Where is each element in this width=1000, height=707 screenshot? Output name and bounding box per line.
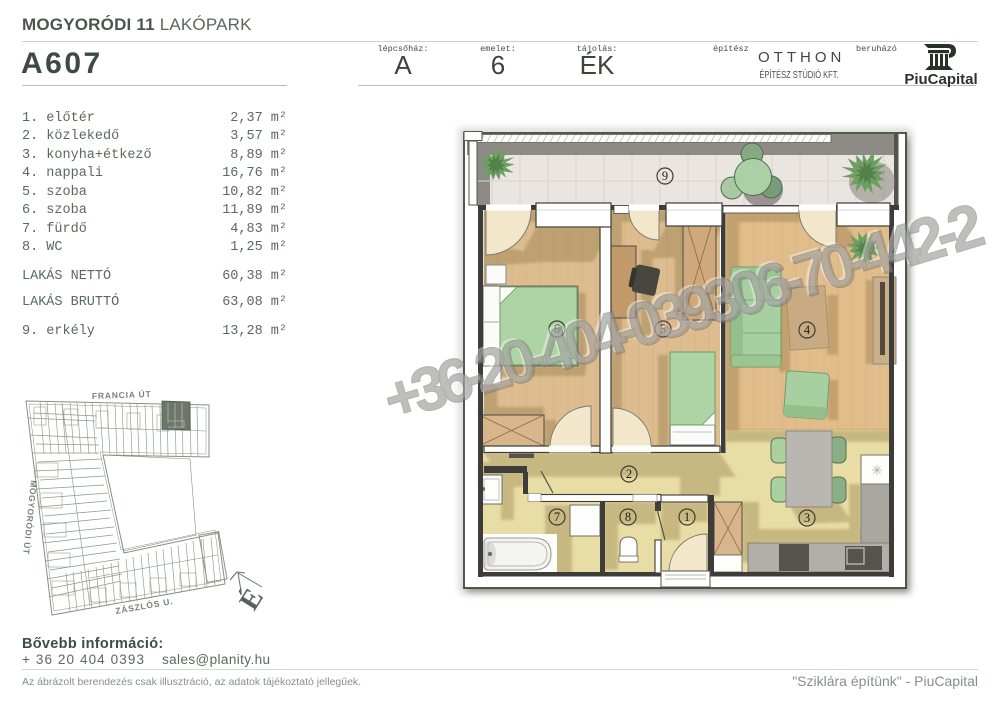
svg-text:2: 2 [626, 467, 632, 481]
svg-text:3: 3 [804, 511, 810, 525]
svg-text:9: 9 [662, 169, 668, 183]
svg-text:7: 7 [554, 510, 560, 524]
svg-text:8: 8 [625, 510, 631, 524]
svg-text:1: 1 [684, 510, 690, 524]
svg-text:4: 4 [804, 323, 811, 337]
